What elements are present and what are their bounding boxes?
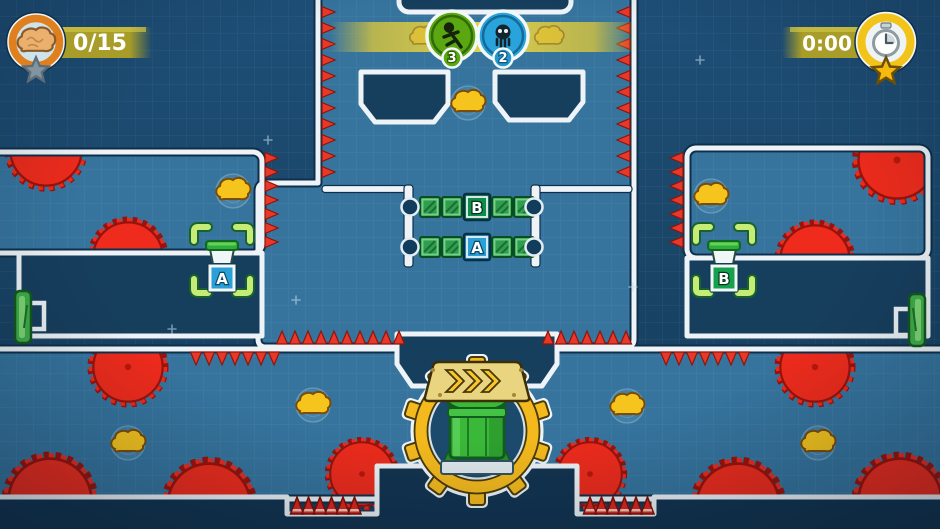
timer-value: 0:00 [802, 32, 852, 56]
vignette-overlay [0, 0, 940, 529]
spawn-count-green: 3 [447, 51, 456, 66]
spawn-count-blue: 2 [498, 51, 507, 66]
brains-counter-value: 0/15 [73, 31, 127, 56]
brain-icon [18, 28, 56, 52]
game-viewport[interactable]: B A A [0, 0, 940, 529]
level-canvas: B A A [0, 0, 940, 529]
banner-brain-icon [535, 26, 564, 44]
